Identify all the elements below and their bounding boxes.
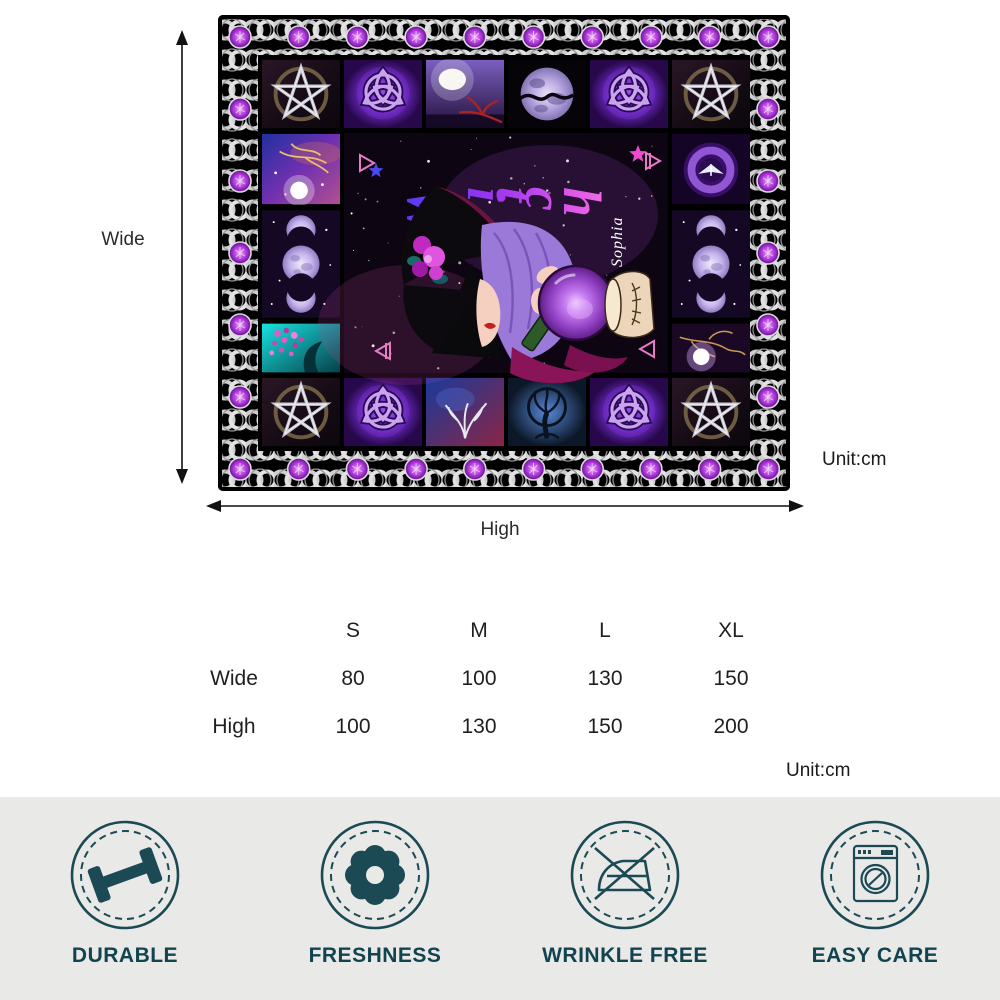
size-col-header: L [542,607,668,655]
dumbbell-icon [65,815,185,935]
feature-wrinkle-free: WRINKLE FREE [500,797,750,1000]
size-value: 150 [542,703,668,751]
blanket-artwork: Witch [218,15,790,491]
flower-icon [315,815,435,935]
size-value: 150 [668,655,794,703]
unit-label-table: Unit:cm [786,760,850,782]
size-value: 80 [290,655,416,703]
feature-freshness: FRESHNESS [250,797,500,1000]
unit-label-top: Unit:cm [822,449,886,471]
feature-easy-care: EASY CARE [750,797,1000,1000]
feature-label: WRINKLE FREE [542,944,708,968]
size-row-label: Wide [178,655,290,703]
size-value: 100 [290,703,416,751]
size-table-corner [178,607,290,655]
feature-durable: DURABLE [0,797,250,1000]
high-dimension-arrow [204,494,806,518]
size-value: 130 [542,655,668,703]
tile-column-right [672,134,750,372]
crystal-ball-stand [605,272,654,338]
feature-label: DURABLE [72,944,178,968]
blanket-product-image: Witch [218,15,790,491]
feature-bar: DURABLE FRESHNESS [0,797,1000,1000]
size-value: 130 [416,703,542,751]
wide-dimension-arrow [168,28,196,486]
size-col-header: M [416,607,542,655]
high-label: High [440,519,560,541]
center-panel: Witch [318,133,668,385]
personal-name-text: Sophia [609,217,626,267]
size-col-header: S [290,607,416,655]
size-table: S M L XL Wide 80 100 130 150 High 100 13… [178,607,794,751]
feature-label: FRESHNESS [309,944,442,968]
size-col-header: XL [668,607,794,655]
feature-label: EASY CARE [812,944,939,968]
wide-label: Wide [78,229,168,251]
size-value: 100 [416,655,542,703]
size-row-label: High [178,703,290,751]
no-iron-icon [565,815,685,935]
size-value: 200 [668,703,794,751]
washing-machine-icon [815,815,935,935]
